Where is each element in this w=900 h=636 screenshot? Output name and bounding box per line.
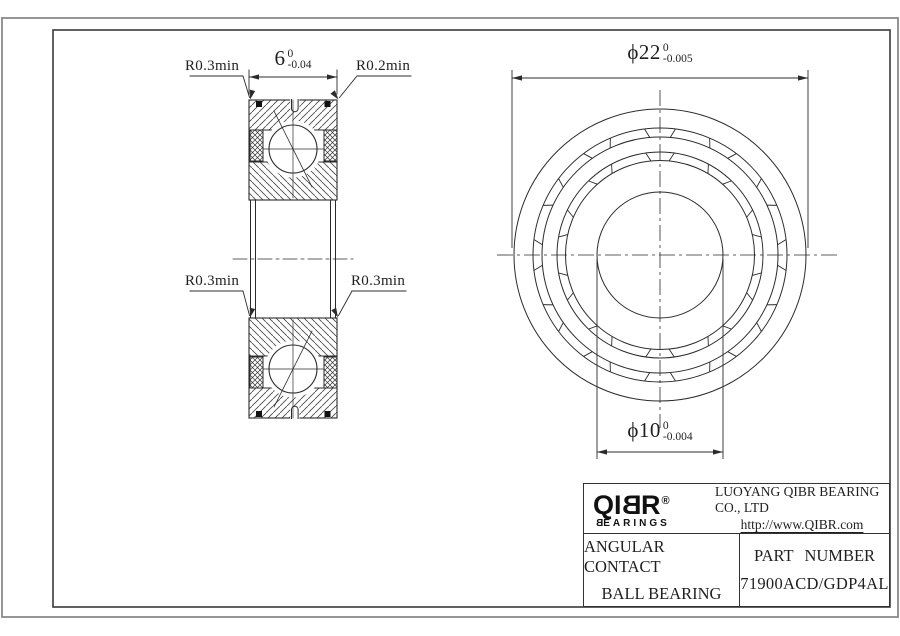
title-block: QIBR® BEARINGS LUOYANG QIBR BEARING CO.,…	[583, 483, 890, 607]
seal-right-bottom	[324, 357, 337, 388]
front-view	[497, 70, 838, 459]
part-number-cell: PART NUMBER 71900ACD/GDP4AL	[740, 534, 889, 606]
arrow-bore-right	[713, 449, 723, 454]
section-bottom-cut	[249, 318, 337, 420]
company-website: http://www.QIBR.com	[741, 517, 864, 533]
title-block-header-row: QIBR® BEARINGS LUOYANG QIBR BEARING CO.,…	[584, 484, 889, 534]
logo-wordmark: QIBR®	[593, 489, 715, 518]
company-info: LUOYANG QIBR BEARING CO., LTD http://www…	[715, 484, 889, 533]
part-number-value: 71900ACD/GDP4AL	[740, 574, 888, 594]
part-number-label: PART NUMBER	[754, 546, 875, 566]
seal-left-bottom	[250, 357, 263, 388]
company-name: LUOYANG QIBR BEARING CO., LTD	[715, 484, 889, 516]
logo-subtitle: BEARINGS	[593, 518, 715, 529]
seal-anchor-right-bottom	[325, 411, 331, 417]
dim-od-tolerance: 0 -0.005	[663, 43, 693, 64]
radius-label-top-right: R0.2min	[356, 58, 410, 75]
section-top-cut	[249, 99, 337, 201]
arrow-od-left	[512, 75, 522, 80]
dim-width-text: 6 0 -0.04	[249, 48, 337, 70]
seal-right-top	[324, 130, 337, 161]
seal-anchor-right-top	[325, 101, 331, 107]
arrow-bore-left	[597, 449, 607, 454]
arrow-width-left	[249, 74, 259, 79]
leader-radius-mid-right	[339, 291, 407, 316]
title-block-body-row: ANGULAR CONTACT BALL BEARING PART NUMBER…	[584, 534, 889, 606]
registered-mark: ®	[662, 495, 670, 507]
dim-od-value: ϕ22	[627, 42, 661, 62]
product-type-cell: ANGULAR CONTACT BALL BEARING	[584, 534, 740, 606]
arrow-width-right	[327, 74, 337, 79]
product-type-line2: BALL BEARING	[602, 584, 722, 604]
leader-radius-mid-left	[190, 291, 250, 316]
radius-label-top-left: R0.3min	[185, 58, 239, 75]
dim-bore-text: ϕ10 0 -0.004	[580, 420, 740, 442]
section-view	[190, 70, 411, 420]
leader-radius-top-right	[340, 76, 412, 98]
product-type-line1: ANGULAR CONTACT	[584, 537, 739, 577]
seal-left-top	[250, 130, 263, 161]
dim-width-tolerance: 0 -0.04	[288, 49, 312, 70]
leader-radius-top-left	[190, 76, 250, 98]
dim-bore-value: ϕ10	[627, 420, 661, 440]
drawing-sheet: 6 0 -0.04 ϕ22 0 -0.005 ϕ10 0 -0.004 R0.3…	[0, 0, 900, 636]
radius-label-mid-left: R0.3min	[185, 273, 239, 290]
dim-od-text: ϕ22 0 -0.005	[580, 42, 740, 64]
seal-anchor-left-bottom	[256, 411, 262, 417]
radius-label-mid-right: R0.3min	[351, 273, 405, 290]
dimension-width-lines	[249, 70, 337, 94]
dim-width-value: 6	[275, 48, 286, 68]
brand-logo: QIBR® BEARINGS	[584, 489, 715, 529]
arrow-od-right	[798, 75, 808, 80]
dim-bore-tolerance: 0 -0.004	[663, 421, 693, 442]
seal-anchor-left-top	[256, 101, 262, 107]
